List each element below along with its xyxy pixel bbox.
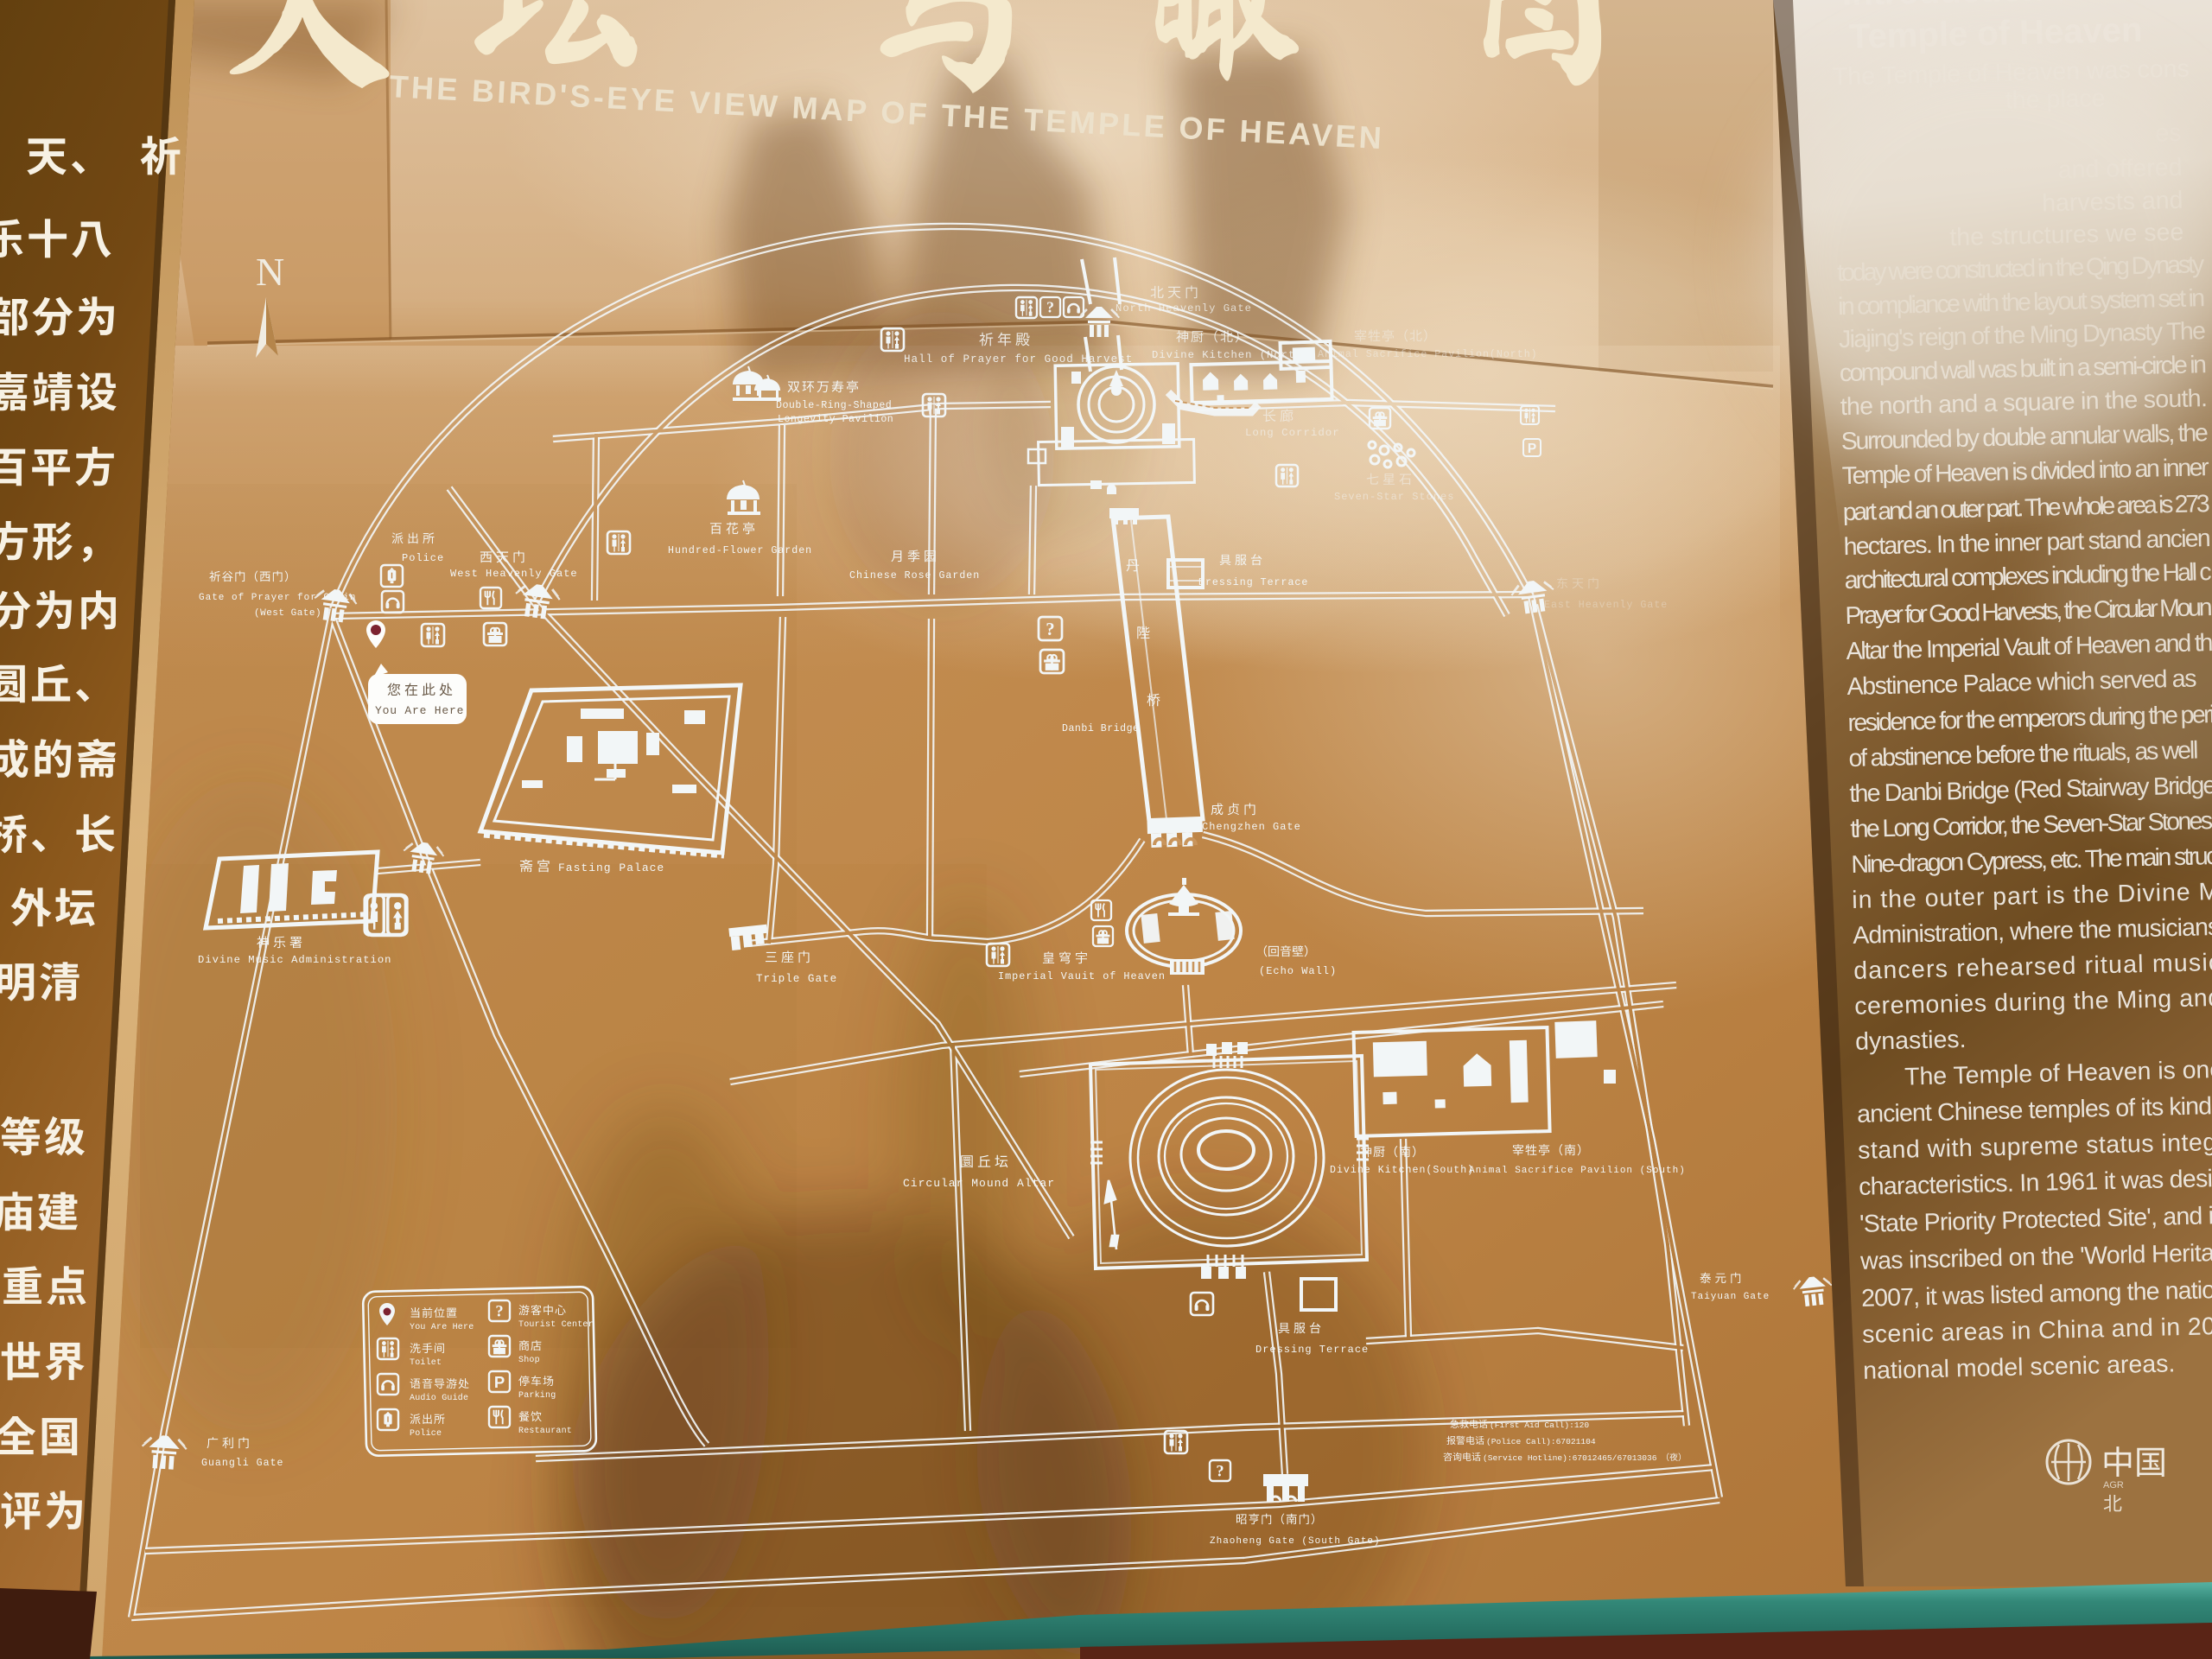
svg-text:Toilet: Toilet	[410, 1357, 442, 1368]
svg-text:P: P	[1528, 442, 1536, 456]
svg-text:Seven-Star Stones: Seven-Star Stones	[1334, 491, 1454, 503]
svg-text:Tourist Center: Tourist Center	[518, 1319, 594, 1330]
svg-text:Danbi Bridge: Danbi Bridge	[1062, 723, 1140, 734]
svg-text:(Echo Wall): (Echo Wall)	[1259, 965, 1337, 977]
svg-text:Long Corridor: Long Corridor	[1245, 427, 1340, 439]
svg-text:Chengzhen Gate: Chengzhen Gate	[1202, 821, 1301, 833]
svg-text:East Heavenly Gate: East Heavenly Gate	[1544, 600, 1668, 611]
svg-text:Divine Kitchen(South): Divine Kitchen(South)	[1330, 1165, 1474, 1176]
svg-text:Restaurant: Restaurant	[518, 1427, 572, 1436]
svg-text:Police: Police	[402, 552, 444, 564]
svg-text:Divine Music Administration: Divine Music Administration	[198, 954, 391, 966]
svg-text:Chinese Rose Garden: Chinese Rose Garden	[849, 570, 980, 582]
svg-text:?: ?	[1046, 299, 1054, 316]
svg-text:North Heavenly Gate: North Heavenly Gate	[1116, 302, 1252, 315]
svg-text:dynasties.: dynasties.	[1855, 1026, 1967, 1056]
svg-text:P: P	[494, 1373, 505, 1391]
svg-text:?: ?	[1046, 620, 1054, 639]
svg-text:?: ?	[495, 1302, 503, 1319]
svg-text:Hall of Prayer for Good Harves: Hall of Prayer for Good Harvest	[904, 353, 1133, 365]
svg-text:Shop: Shop	[518, 1355, 540, 1365]
svg-text:West Heavenly Gate: West Heavenly Gate	[450, 568, 578, 580]
svg-text:Fasting Palace: Fasting Palace	[558, 861, 664, 874]
svg-text:Taiyuan Gate: Taiyuan Gate	[1691, 1292, 1770, 1302]
svg-text:(West Gate): (West Gate)	[254, 608, 321, 619]
svg-text:Animal Sacrifice Pavilion (Sou: Animal Sacrifice Pavilion (South)	[1469, 1166, 1686, 1176]
svg-text:(Police Call):67021104: (Police Call):67021104	[1486, 1437, 1596, 1446]
svg-text:Divine Kitchen (North: Divine Kitchen (North	[1152, 349, 1303, 361]
svg-text:Double-Ring-Shaped: Double-Ring-Shaped	[776, 400, 892, 411]
svg-text:Hundred-Flower Garden: Hundred-Flower Garden	[668, 545, 812, 556]
svg-text:Gate of Prayer for Grain: Gate of Prayer for Grain	[199, 593, 356, 603]
svg-text:You Are Here: You Are Here	[410, 1323, 474, 1332]
svg-text:(First Aid Call):120: (First Aid Call):120	[1490, 1421, 1589, 1430]
svg-text:Audio Guide: Audio Guide	[410, 1393, 468, 1403]
svg-text:Longevity Pavilion: Longevity Pavilion	[778, 414, 893, 425]
svg-text:Police: Police	[410, 1428, 442, 1439]
svg-text:Circular Mound Altar: Circular Mound Altar	[903, 1177, 1055, 1190]
svg-text:Triple Gate: Triple Gate	[756, 973, 837, 985]
svg-text:Animal Sacrifice Pavilion(Nort: Animal Sacrifice Pavilion(North)	[1318, 349, 1538, 360]
svg-text:Imperial Vauit of Heaven: Imperial Vauit of Heaven	[998, 970, 1166, 982]
svg-text:Guangli Gate: Guangli Gate	[201, 1458, 284, 1469]
svg-text:Dressing Terrace: Dressing Terrace	[1255, 1344, 1369, 1356]
svg-text:N: N	[256, 250, 284, 294]
svg-text:Parking: Parking	[518, 1390, 556, 1401]
svg-text:AGR: AGR	[2103, 1480, 2124, 1491]
svg-text:Zhaoheng Gate (South Gate): Zhaoheng Gate (South Gate)	[1210, 1536, 1381, 1547]
svg-text:(Service Hotline):67012465/670: (Service Hotline):67012465/67013036	[1483, 1453, 1657, 1463]
svg-text:?: ?	[1216, 1462, 1224, 1479]
svg-text:Dressing Terrace: Dressing Terrace	[1198, 577, 1308, 588]
svg-text:You Are Here: You Are Here	[375, 704, 464, 717]
